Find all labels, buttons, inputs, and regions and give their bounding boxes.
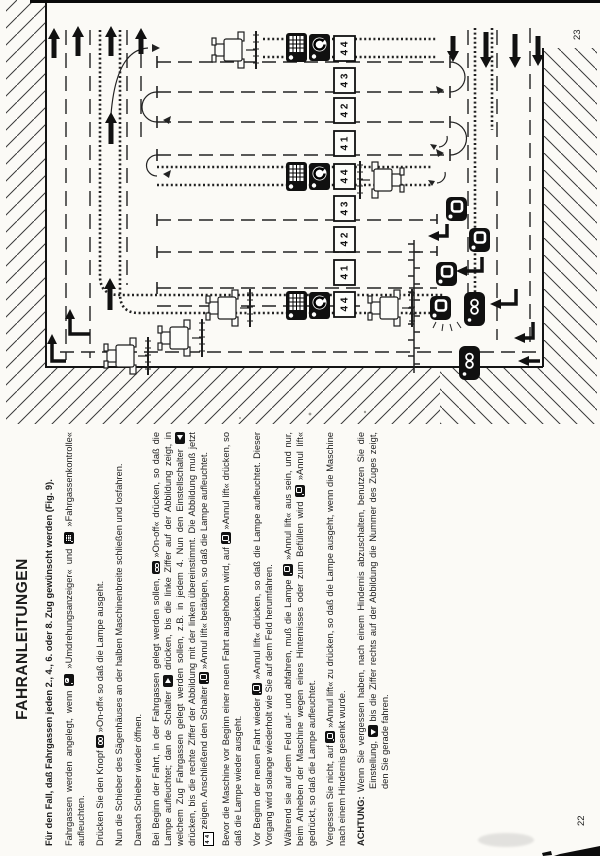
annul-lift-icon [446,197,467,221]
tramline-counter-value: 4 3 [340,73,351,87]
rev-indicator-icon [309,34,330,61]
tramline-counter-value: 4 4 [340,41,351,55]
tramline-counter-value: 4 4 [340,297,351,311]
tramline-counter-value: 4 4 [340,169,351,183]
tramline-control-icon [286,162,307,191]
tramline-counter-value: 4 1 [340,136,351,150]
field-diagram: 4 44 34 24 14 44 34 24 14 4 [0,0,600,430]
tractor-icons [104,31,415,375]
paragraph: Bevor die Maschine vor Beginn einer neue… [221,432,245,846]
arrow-down-switch-icon [368,725,378,737]
arrow-right-switch-icon [163,675,173,687]
tramline-control-icon [64,532,74,544]
scan-edge-line [30,0,600,3]
annul-lift-icon [430,296,451,320]
annul-lift-icon [199,672,209,684]
annul-lift-icon [436,262,457,286]
tramline-control-icon [286,33,307,62]
rev-indicator-icon [309,292,330,319]
on-off-icon [96,735,104,748]
on-off-icon [152,561,160,574]
paragraph: Nun die Schieber des Sägenhäuses an der … [114,432,126,846]
arrow-left-switch-icon [175,432,185,444]
on-off-icon [464,292,485,326]
tractor-icon [212,31,259,69]
rev-indicator-icon [64,674,74,686]
page-number-22: 22 [576,815,587,826]
text-page: FAHRANLEITUNGEN Für den Fall, daß Fahrga… [12,432,399,846]
paragraph: Danach Schieber wieder öffnen. [133,432,145,846]
tramline-counter-value: 4 1 [340,265,351,279]
annul-lift-icon [283,564,293,576]
tramline-control-icon [286,291,307,320]
paragraph-container: Für den Fall, daß Fahrgassen jeden 2., 4… [44,432,392,846]
annul-lift-icon [252,683,262,695]
tramline-counter-value: 4 2 [340,232,351,246]
paragraph: Drücken Sie den Knopf »On-off« so daß di… [95,432,107,846]
annul-lift-icon [325,731,335,743]
counter-display-icon: 4 4 [203,832,214,846]
rev-indicator-icon [309,163,330,190]
annul-lift-icon [295,485,305,497]
annul-lift-icon [221,532,231,544]
scanned-page: FAHRANLEITUNGEN Für den Fall, daß Fahrga… [0,0,600,856]
paragraph: Vergessen Sie nicht, auf »Annul lift« zu… [325,432,349,846]
field-boundary-hatch [6,0,597,424]
paragraph: Bei Beginn der Fahrt, in der Fahrgassen … [151,432,214,846]
paragraph: Vor Beginn der neuen Fahrt wieder »Annul… [252,432,276,846]
scan-smudge [478,833,534,847]
achtung-label: ACHTUNG: [356,792,366,846]
scan-corner-smudge [540,844,600,856]
page-title: FAHRANLEITUNGEN [14,432,32,846]
paragraph: Fahrgassen werden angelegt, wenn »Umdreh… [64,432,88,846]
tramline-counter-value: 4 2 [340,103,351,117]
on-off-icon [459,346,480,380]
monitor-icons [286,33,330,320]
paragraph: Für den Fall, daß Fahrgassen jeden 2., 4… [44,432,56,846]
paragraph: ACHTUNG: Wenn Sie vergessen haben, nach … [356,432,392,846]
annul-lift-icon [469,228,490,252]
paragraph: Während sie auf dem Feld auf- und abfahr… [283,432,319,846]
counter-boxes: 4 44 34 24 14 44 34 24 14 4 [334,36,355,317]
tramline-counter-value: 4 3 [340,201,351,215]
